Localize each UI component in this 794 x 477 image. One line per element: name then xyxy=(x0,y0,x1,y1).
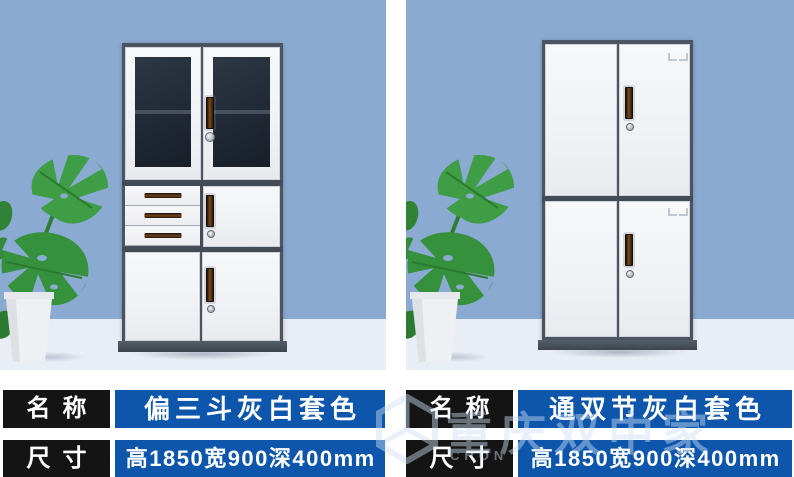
drawer-handle xyxy=(144,233,181,238)
shelf-line xyxy=(135,110,191,114)
product-photo-left xyxy=(0,0,386,370)
size-value: 高1850宽900深400mm xyxy=(115,440,385,477)
product-detail-image: 名称 偏三斗灰白套色 尺寸 高1850宽900深400mm xyxy=(0,0,794,477)
size-label: 尺寸 xyxy=(3,440,110,477)
size-value: 高1850宽900深400mm xyxy=(518,440,792,477)
drawer xyxy=(125,206,200,226)
name-value: 偏三斗灰白套色 xyxy=(115,390,385,428)
monstera-plant xyxy=(0,146,118,368)
spec-row-size: 尺寸 高1850宽900深400mm xyxy=(3,440,385,477)
drawer-handle xyxy=(144,213,181,218)
lower-door-right xyxy=(619,201,690,337)
vent-mark xyxy=(679,53,688,61)
lower-door-handle xyxy=(625,234,633,266)
door-lock xyxy=(205,132,215,142)
name-label: 名称 xyxy=(406,390,513,428)
cabinet-double-section xyxy=(542,40,693,340)
drawer-handle xyxy=(144,193,181,198)
lower-door-left xyxy=(545,201,617,337)
drawer-stack xyxy=(125,186,200,247)
monstera-plant xyxy=(406,146,524,368)
cabinet-offset-three-drawer xyxy=(122,43,283,341)
upper-door-left xyxy=(545,44,617,196)
lower-door-lock xyxy=(626,270,634,278)
vent-mark xyxy=(679,208,688,216)
spec-rows: 名称 偏三斗灰白套色 尺寸 高1850宽900深400mm xyxy=(3,390,385,477)
upper-door-lock xyxy=(626,123,634,131)
plant-pot-rim xyxy=(410,292,460,299)
middle-door xyxy=(203,186,280,247)
cabinet-plinth xyxy=(118,341,287,352)
vent-mark xyxy=(668,53,677,61)
product-photo-right xyxy=(406,0,794,370)
bottom-door-left xyxy=(125,252,200,341)
spec-row-name: 名称 通双节灰白套色 xyxy=(406,390,792,428)
upper-door-right xyxy=(619,44,690,196)
shelf-line xyxy=(213,110,270,114)
vent-mark xyxy=(668,208,677,216)
name-label: 名称 xyxy=(3,390,110,428)
size-label: 尺寸 xyxy=(406,440,513,477)
glass-panel xyxy=(213,57,270,167)
cabinet-plinth xyxy=(538,340,697,350)
spec-rows: 名称 通双节灰白套色 尺寸 高1850宽900深400mm xyxy=(406,390,792,477)
glass-panel xyxy=(135,57,191,167)
drawer xyxy=(125,226,200,246)
bottom-door-lock xyxy=(207,305,215,313)
product-panel-right: 名称 通双节灰白套色 尺寸 高1850宽900深400mm xyxy=(406,0,794,477)
glass-door-left xyxy=(125,47,201,180)
middle-door-lock xyxy=(207,230,215,238)
bottom-door-handle xyxy=(206,268,214,302)
drawer xyxy=(125,186,200,206)
plant-pot-rim xyxy=(4,292,54,299)
upper-door-handle xyxy=(625,87,633,119)
glass-door-right xyxy=(203,47,280,180)
name-value: 通双节灰白套色 xyxy=(518,390,792,428)
door-handle xyxy=(206,97,214,129)
spec-row-size: 尺寸 高1850宽900深400mm xyxy=(406,440,792,477)
spec-row-name: 名称 偏三斗灰白套色 xyxy=(3,390,385,428)
product-panel-left: 名称 偏三斗灰白套色 尺寸 高1850宽900深400mm xyxy=(0,0,386,477)
middle-door-handle xyxy=(206,195,214,227)
